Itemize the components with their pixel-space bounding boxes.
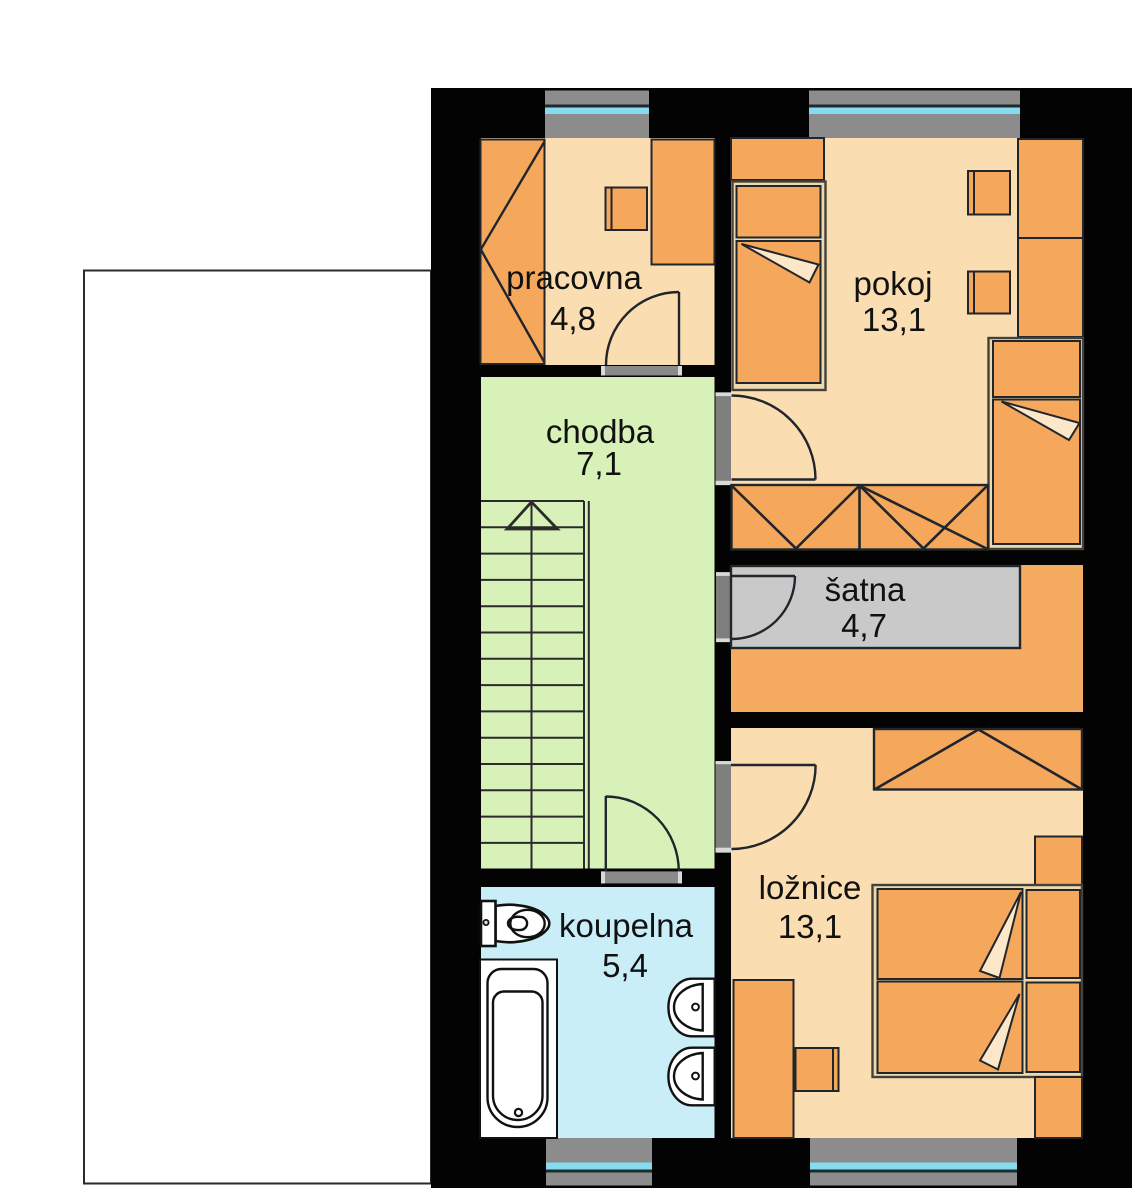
svg-text:pokoj: pokoj bbox=[854, 265, 933, 302]
svg-text:4,8: 4,8 bbox=[550, 300, 596, 337]
svg-text:ložnice: ložnice bbox=[759, 869, 862, 906]
svg-text:koupelna: koupelna bbox=[559, 907, 694, 944]
svg-text:pracovna: pracovna bbox=[506, 259, 642, 296]
svg-text:13,1: 13,1 bbox=[778, 908, 842, 945]
svg-text:13,1: 13,1 bbox=[862, 301, 926, 338]
svg-text:5,4: 5,4 bbox=[602, 947, 648, 984]
svg-text:7,1: 7,1 bbox=[576, 445, 622, 482]
svg-text:šatna: šatna bbox=[825, 571, 906, 608]
svg-text:4,7: 4,7 bbox=[841, 607, 887, 644]
